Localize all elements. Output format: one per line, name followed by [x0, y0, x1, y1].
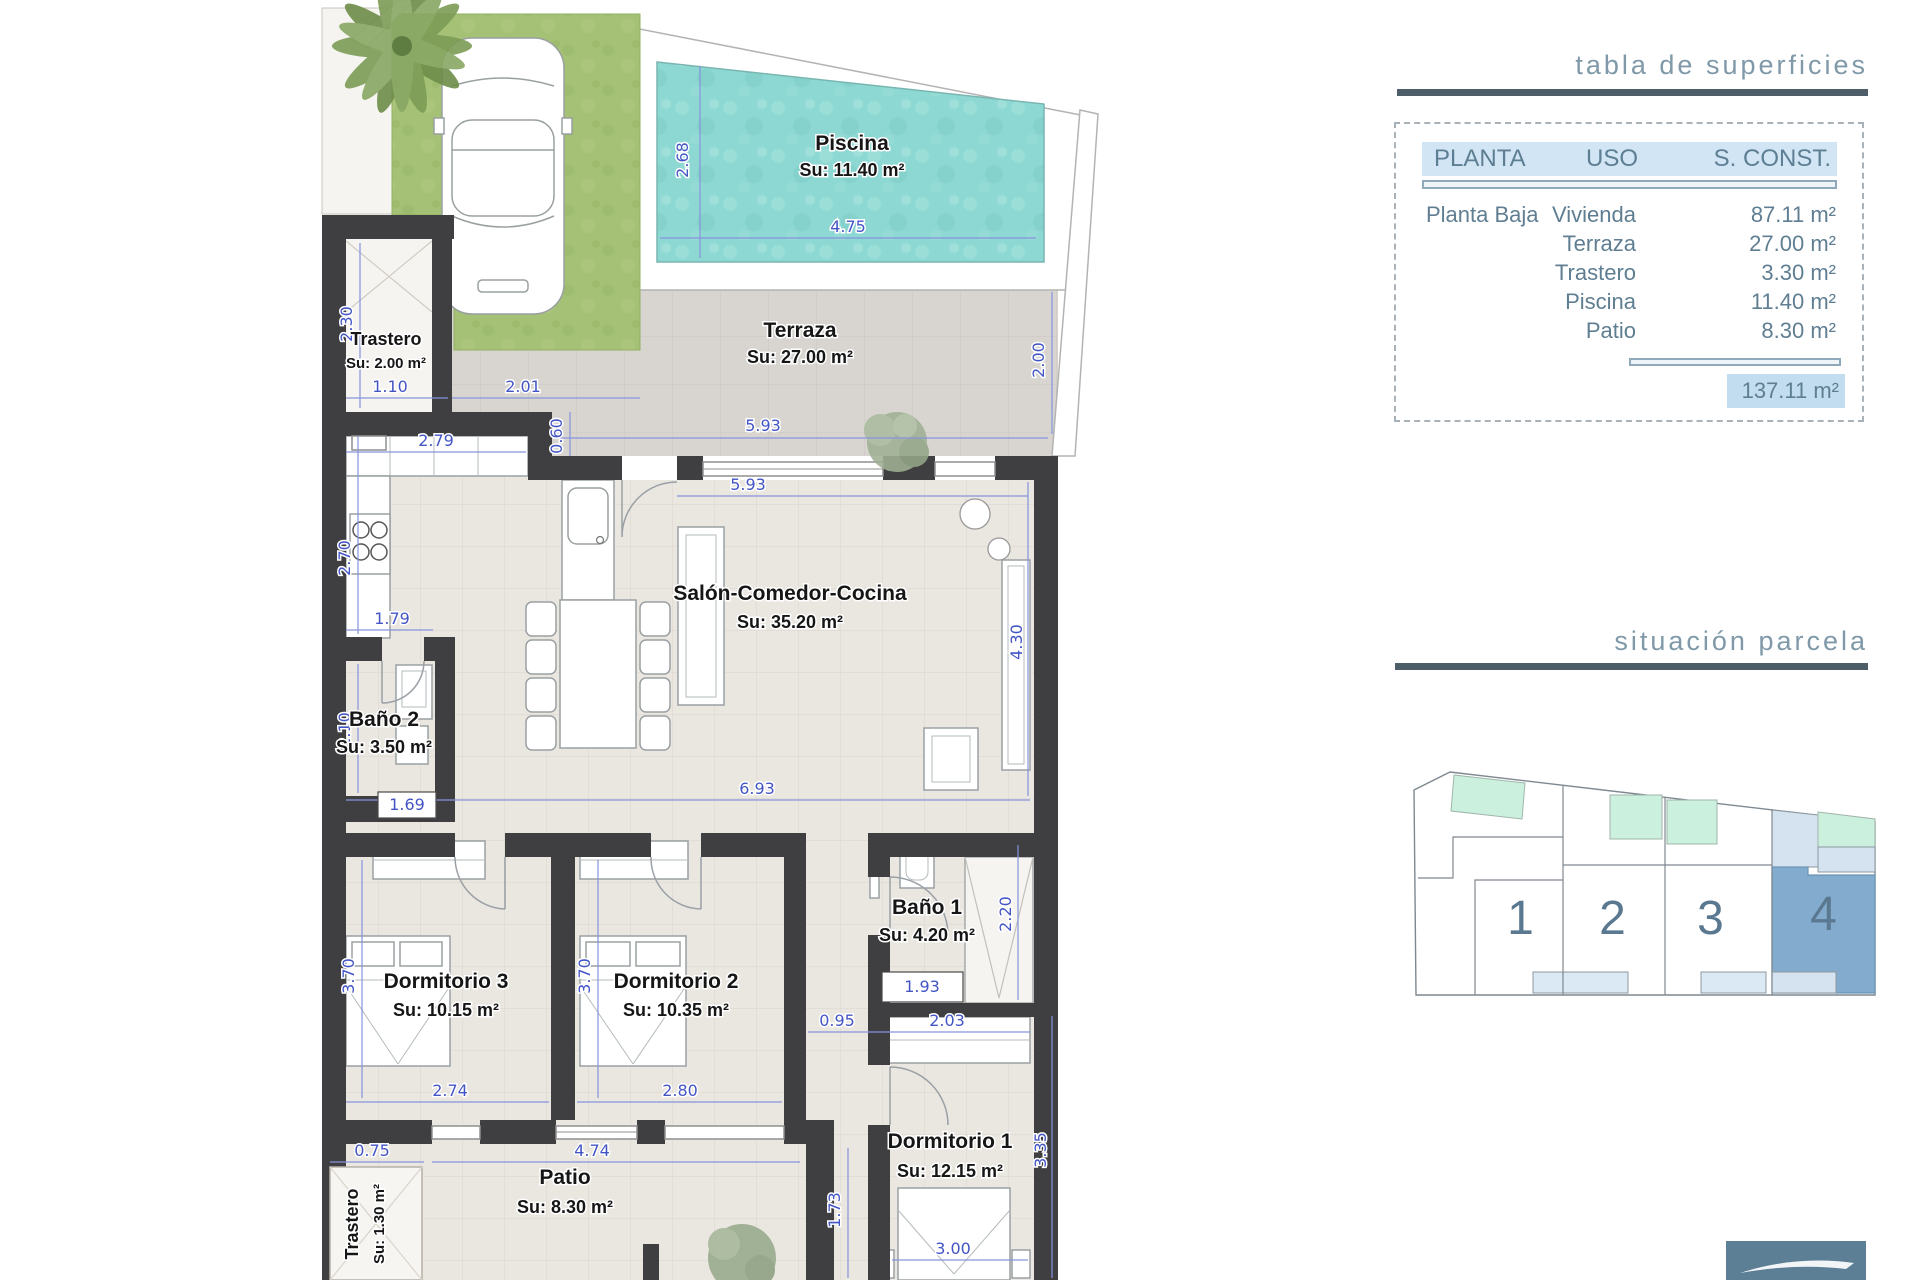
cell-value: 8.30 m²: [1646, 316, 1836, 345]
parcel-section-title: situación parcela: [1390, 626, 1868, 657]
table-row: Piscina 11.40 m²: [1426, 287, 1836, 316]
dim: 2.80: [662, 1081, 698, 1100]
room-label-dorm3: Dormitorio 3: [384, 970, 509, 993]
plot4-patio-area: [1772, 810, 1818, 867]
table-row: Patio 8.30 m²: [1426, 316, 1836, 345]
total-surface-badge: 137.11 m²: [1727, 374, 1845, 408]
dim: 2.20: [996, 896, 1015, 932]
dim-pool-h: 2.68: [673, 142, 692, 178]
dim-door: 1.93: [904, 977, 940, 996]
cell-uso: Vivienda: [1544, 200, 1646, 229]
dim: 3.00: [935, 1239, 971, 1258]
dim: 2.79: [418, 431, 454, 450]
plot-number-2: 2: [1599, 892, 1627, 945]
cell-planta: [1426, 316, 1544, 345]
dim: 0.60: [547, 418, 566, 454]
dim: 6.93: [739, 779, 775, 798]
plot1-pool: [1451, 775, 1525, 819]
room-area-dorm1: Su: 12.15 m²: [897, 1161, 1003, 1181]
cell-uso: Trastero: [1544, 258, 1646, 287]
dim: 5.93: [730, 475, 766, 494]
cell-value: 3.30 m²: [1646, 258, 1836, 287]
room-area-patio: Su: 8.30 m²: [517, 1197, 613, 1217]
room-area-terraza: Su: 27.00 m²: [747, 347, 853, 367]
dim: 0.75: [354, 1141, 390, 1160]
room-label-bano2: Baño 2: [349, 708, 419, 731]
room-area-dorm3: Su: 10.15 m²: [393, 1000, 499, 1020]
room-label-bano1: Baño 1: [892, 896, 962, 919]
header-separator: [1422, 180, 1837, 189]
dim: 2.00: [1029, 342, 1048, 378]
floor-plan-drawing: 2.68 4.75 2.30 1.10 2.01 0.60 5.93 2.00 …: [0, 0, 1100, 1280]
dim: 2.03: [929, 1011, 965, 1030]
logo-box: [1726, 1241, 1866, 1280]
plot3-pool: [1667, 800, 1717, 844]
dim: 3.70: [575, 958, 594, 994]
table-header-row: PLANTA USO S. CONST.: [1422, 142, 1837, 176]
dim: 0.95: [819, 1011, 855, 1030]
surfaces-title-rule: [1397, 89, 1868, 96]
dim: 3.35: [1031, 1132, 1050, 1168]
parcel-title-rule: [1395, 663, 1868, 670]
col-header-uso: USO: [1567, 145, 1657, 173]
cell-uso: Patio: [1544, 316, 1646, 345]
surfaces-table-title: tabla de superficies: [1390, 50, 1868, 81]
dim-door: 1.69: [389, 795, 425, 814]
dim: 1.73: [825, 1192, 844, 1228]
plot4-pool: [1818, 812, 1875, 847]
room-label-trastero2: Trastero: [342, 1188, 362, 1259]
room-label-salon: Salón-Comedor-Cocina: [673, 582, 907, 605]
surfaces-table: PLANTA USO S. CONST. Planta Baja Viviend…: [1394, 122, 1864, 422]
room-label-patio: Patio: [539, 1166, 590, 1189]
col-header-sconst: S. CONST.: [1714, 145, 1831, 173]
cell-value: 27.00 m²: [1646, 229, 1836, 258]
dim-pool-w: 4.75: [830, 217, 866, 236]
room-label-trastero: Trastero: [350, 329, 421, 349]
dim: 4.74: [574, 1141, 610, 1160]
plot-number-3: 3: [1697, 892, 1725, 945]
room-label-piscina: Piscina: [815, 132, 889, 155]
plot-number-4: 4: [1810, 888, 1838, 941]
cell-planta: Planta Baja: [1426, 200, 1544, 229]
room-label-dorm2: Dormitorio 2: [614, 970, 739, 993]
table-row: Trastero 3.30 m²: [1426, 258, 1836, 287]
logo-swoosh-icon: [1726, 1241, 1866, 1280]
floor-plan-page: { "surfaces_table": { "title": "tabla de…: [0, 0, 1920, 1280]
room-area-trastero2: Su: 1.30 m²: [371, 1184, 388, 1264]
cell-value: 11.40 m²: [1646, 287, 1836, 316]
dim: 3.70: [339, 958, 358, 994]
col-header-planta: PLANTA: [1434, 145, 1526, 173]
bedroom2-furniture: [580, 841, 688, 1066]
room-label-terraza: Terraza: [763, 319, 836, 342]
plot-number-1: 1: [1507, 892, 1535, 945]
cell-uso: Terraza: [1544, 229, 1646, 258]
dim: 2.70: [335, 540, 354, 576]
cell-planta: [1426, 287, 1544, 316]
dim: 2.01: [505, 377, 541, 396]
room-area-dorm2: Su: 10.35 m²: [623, 1000, 729, 1020]
dim: 1.10: [372, 377, 408, 396]
table-body: Planta Baja Vivienda 87.11 m² Terraza 27…: [1426, 200, 1836, 345]
dim: 4.30: [1007, 624, 1026, 660]
room-label-dorm1: Dormitorio 1: [888, 1130, 1013, 1153]
room-area-salon: Su: 35.20 m²: [737, 612, 843, 632]
plot2-pool: [1610, 795, 1662, 839]
cell-value: 87.11 m²: [1646, 200, 1836, 229]
parcel-situation-map: 1 2 3 4: [1408, 762, 1878, 1002]
cell-planta: [1426, 258, 1544, 287]
room-area-trastero: Su: 2.00 m²: [346, 355, 426, 372]
sink-icon: [568, 488, 608, 544]
room-area-bano1: Su: 4.20 m²: [879, 925, 975, 945]
cell-planta: [1426, 229, 1544, 258]
dim: 1.79: [374, 609, 410, 628]
dim: 2.74: [432, 1081, 468, 1100]
cell-uso: Piscina: [1544, 287, 1646, 316]
dim: 5.93: [745, 416, 781, 435]
table-row: Terraza 27.00 m²: [1426, 229, 1836, 258]
room-area-piscina: Su: 11.40 m²: [799, 160, 904, 180]
total-separator: [1629, 358, 1841, 366]
table-row: Planta Baja Vivienda 87.11 m²: [1426, 200, 1836, 229]
room-area-bano2: Su: 3.50 m²: [336, 737, 432, 757]
